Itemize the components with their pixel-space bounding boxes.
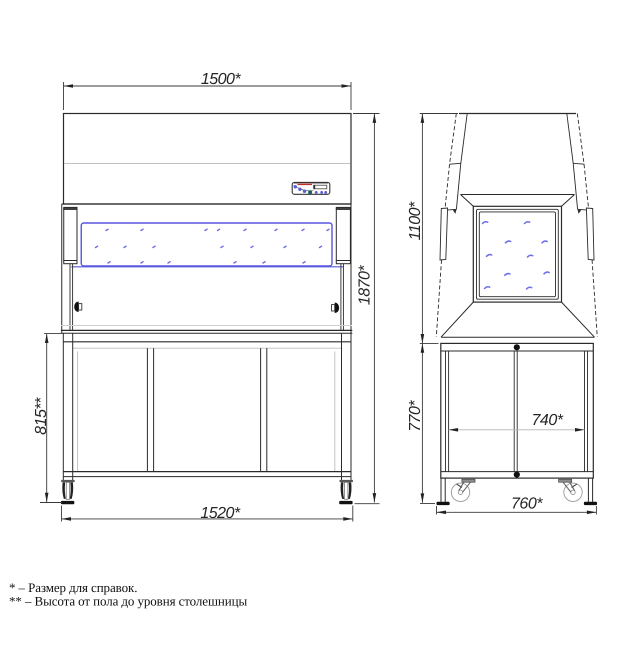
svg-text:770*: 770* — [407, 400, 424, 432]
svg-text:1100*: 1100* — [407, 201, 424, 240]
svg-text:815**: 815** — [33, 397, 50, 435]
svg-text:** – Высота от пола до уровня: ** – Высота от пола до уровня столешницы — [9, 594, 247, 609]
svg-text:1520*: 1520* — [200, 505, 241, 522]
svg-text:760*: 760* — [511, 496, 543, 513]
svg-text:1500*: 1500* — [201, 71, 242, 88]
svg-text:1870*: 1870* — [357, 265, 374, 306]
svg-text:740*: 740* — [532, 412, 564, 429]
